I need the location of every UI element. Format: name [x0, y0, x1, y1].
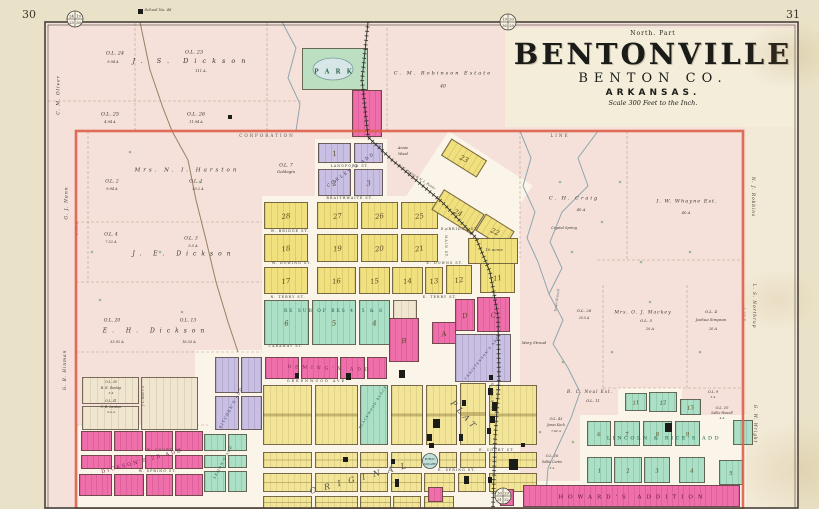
map-label: Joshua Simpson — [695, 317, 727, 322]
map-label: GREENWOOD AVE. — [287, 379, 349, 383]
map-label: O.L. 5 — [640, 318, 653, 323]
map-label: C — [490, 311, 497, 320]
map-label: 5 — [729, 471, 734, 477]
map-label: N. J. Robbins — [751, 176, 756, 217]
map-label: E. TERRY ST. — [423, 295, 458, 299]
map-label: 6 — [284, 319, 290, 328]
section-number: 19 — [76, 15, 81, 19]
map-label: E. H. Dickson — [102, 328, 210, 335]
map-label: LINCOLN & RICE'S ADD — [607, 436, 721, 442]
map-label: O.L. 4 — [705, 309, 718, 314]
map-label: G. W. Wright — [753, 405, 758, 444]
map-label: 7.52 A — [105, 240, 117, 244]
map-label: D — [461, 312, 469, 321]
map-label: Jonas Koch — [546, 423, 565, 427]
map-label: 18 — [281, 244, 291, 253]
map-label: O.L. 13 — [180, 318, 197, 324]
map-label: B — [400, 337, 407, 346]
map-label: N. TERRY ST. — [270, 295, 305, 299]
map-label: 16 — [332, 277, 342, 286]
map-label: Mary Stroud — [521, 340, 547, 345]
map-label: 13 — [687, 405, 695, 412]
map-label: O.L. 1 — [189, 179, 203, 185]
map-label: 5 — [331, 319, 337, 328]
map-label: 19 — [333, 244, 343, 253]
map-label: P A R K — [314, 69, 354, 76]
map-label: SQUARE — [424, 462, 436, 466]
map-label: E. SPRING ST. — [438, 468, 476, 472]
map-label: CHRISTENSON'S ADD — [464, 335, 501, 380]
map-label: KITCHEN'S ADD — [218, 386, 244, 429]
map-label: 12 — [454, 276, 464, 285]
map-label: 14 — [403, 277, 413, 286]
map-label: 17 — [281, 277, 291, 286]
map-label: J. E. Dickson — [130, 251, 235, 258]
map-label: C. H. Craig — [549, 196, 599, 202]
map-scale-note: Scale 300 Feet to the Inch. — [508, 99, 798, 107]
map-label: 22 — [488, 226, 501, 238]
map-label: 12 — [659, 400, 667, 407]
map-label: LEMON'S ADD — [213, 445, 234, 480]
map-label: Town Branch — [553, 288, 560, 312]
map-label: ORIGINAL — [309, 459, 415, 495]
map-label: 1 — [597, 468, 601, 474]
map-label: 111 A. — [195, 69, 206, 73]
map-label: RE SUB OF BKS 4, 5 & 6 — [284, 309, 384, 314]
map-label: O.L. 20 — [104, 318, 121, 324]
map-label: BRAITHWAITE ST. — [326, 196, 373, 200]
title-kicker: North. Part — [508, 30, 798, 37]
map-label: W. BRIDGE ST. — [271, 229, 310, 233]
map-label: 16.33 A — [182, 340, 196, 344]
map-label: O.L. 23 — [185, 50, 203, 56]
map-label: 1 — [332, 150, 338, 159]
map-label: 40 A — [576, 207, 586, 212]
map-label: Goldagin — [277, 169, 296, 174]
map-label: 20 A — [645, 327, 655, 331]
map-label: 11 — [632, 400, 640, 407]
map-label: School No. 46 — [145, 7, 173, 12]
map-label: O.L. 43 — [550, 417, 564, 421]
map-label: PLAT — [448, 398, 480, 433]
map-label: S. MAIN ST. — [490, 383, 494, 414]
map-label: E. COURT ST. — [479, 448, 515, 452]
map-label: 10 acres — [485, 247, 502, 252]
map-label: A — [440, 330, 447, 339]
map-label: 20 A — [708, 327, 718, 331]
map-label: 21 — [414, 244, 425, 253]
map-label: W. E. Patton & N. L. Banks — [398, 164, 437, 191]
map-label: N. MAIN ST. — [444, 227, 448, 258]
map-label: 4 A — [718, 416, 725, 420]
map-label: 3 — [366, 179, 372, 188]
map-label: 28 — [280, 212, 291, 221]
map-label: 25 — [414, 212, 425, 221]
map-label: HOWARD'S ADDITION — [558, 495, 707, 501]
map-label: 40 A — [681, 210, 691, 215]
map-label: 4 — [371, 319, 378, 328]
map-label: J. L. Bare 1 A — [141, 385, 145, 407]
section-number: 32 — [504, 498, 509, 502]
map-label: LINE — [742, 308, 747, 323]
map-label: 4.94 A — [103, 120, 116, 124]
map-subtitle-state: ARKANSAS. — [508, 88, 798, 98]
map-label: 33.92 A — [110, 340, 124, 344]
map-label: O.L. 26 — [187, 112, 206, 118]
map-label: 26 — [374, 212, 385, 221]
section-number: 24 — [69, 15, 74, 19]
map-label: O.L. 25 — [101, 112, 119, 118]
map-label: CARAWAY ST. — [268, 344, 303, 348]
map-label: Mrs. O. J. Mackey — [613, 310, 671, 316]
page-number-left: 30 — [22, 8, 36, 21]
map-label: Annie — [397, 146, 408, 150]
plat-map-page: 30 31 North. Part BENTONVILLE BENTON CO.… — [0, 0, 819, 509]
map-label: 40 — [439, 84, 446, 90]
map-label: 9.94 A — [107, 60, 119, 64]
section-number: 29 — [504, 492, 509, 496]
map-label: O.L. 30 — [105, 380, 117, 384]
map-label: 2 — [625, 468, 631, 475]
title-block: North. Part BENTONVILLE BENTON CO. ARKAN… — [508, 30, 798, 107]
map-label: O.L. 10 — [716, 406, 730, 410]
map-label: O.L. 11 — [586, 398, 600, 403]
map-label: O.L. 3 — [184, 236, 198, 242]
map-label: O.L. 7 — [279, 163, 293, 169]
map-label: 6 — [597, 432, 602, 438]
map-label: Crystal Spring — [551, 226, 578, 230]
map-label: O.L. 9 — [708, 390, 719, 394]
map-label: 20.5 A — [578, 316, 590, 320]
map-label: 3.4 A — [107, 410, 116, 414]
map-subtitle-county: BENTON CO. — [508, 71, 798, 86]
map-label: O.L. 16 — [546, 454, 560, 458]
map-label: J. S. Dickson — [131, 57, 252, 65]
map-label: 24 — [451, 207, 463, 218]
map-label: L. S. Northrup — [752, 283, 757, 329]
map-label: 5 A — [710, 395, 716, 399]
map-label: C. B. Lawton — [101, 405, 122, 409]
map-label: 11.94 A — [189, 120, 203, 124]
map-label: 9.94 A — [106, 187, 118, 191]
map-label: DEMING'S ADD — [287, 364, 372, 373]
map-label: 15 — [370, 277, 380, 286]
map-label: 4 — [689, 468, 695, 475]
section-number: 30 — [497, 492, 502, 496]
section-number: 30 — [502, 24, 507, 28]
map-label: E. DOWNS ST. — [426, 261, 463, 265]
section-number: 25 — [69, 21, 74, 25]
map-label: W. DOWING ST. — [272, 261, 312, 265]
map-label: PUBLIC — [425, 457, 436, 461]
section-number: 19 — [502, 18, 507, 22]
map-label: 27 — [332, 212, 343, 221]
map-label: 3 A — [108, 391, 114, 395]
map-label: LINE — [550, 133, 569, 138]
map-label: G. J. Nunn — [64, 186, 70, 219]
map-label: O.L. 4 — [104, 232, 118, 238]
map-label: BLACKWOOD BLOCK — [358, 385, 388, 430]
map-label: LINE — [74, 221, 79, 236]
map-label: Mrs. N. I. Harston — [134, 168, 240, 174]
section-number: 30 — [76, 21, 81, 25]
map-label: 20.2 A — [191, 187, 204, 191]
map-label: O.L. 24 — [106, 51, 124, 57]
map-label: B. C. Neal Est. — [566, 389, 613, 394]
map-label: 20 — [374, 244, 385, 253]
map-label: Sallie Curtis — [542, 460, 562, 464]
section-number: 20 — [509, 18, 514, 22]
map-label: Wood — [398, 152, 409, 156]
map-label: 13 — [429, 277, 439, 286]
map-label: W. SPRING ST. — [139, 469, 177, 473]
map-label: Sallie Howell — [711, 411, 732, 415]
map-label: 11 — [493, 274, 503, 283]
section-number: 29 — [509, 24, 514, 28]
page-number-right: 31 — [786, 8, 800, 21]
map-label: R. E. Dunlap — [100, 386, 121, 390]
map-label: 3 — [655, 468, 660, 474]
map-label: 23 — [457, 153, 470, 165]
map-label: C. M. Robinson Estate — [394, 71, 492, 77]
map-label: I. W. Whayne Est. — [655, 199, 717, 205]
map-label: 3 A — [549, 466, 555, 470]
map-label: O.L. 26 — [577, 308, 592, 313]
map-label: CORPORATION — [239, 133, 295, 138]
map-title: BENTONVILLE — [508, 39, 798, 69]
map-label: 5.5 A — [188, 244, 198, 248]
map-label: O.L. 41 — [105, 399, 117, 403]
map-label: G. B. Hinman — [62, 350, 67, 390]
map-label: C. M. Oliver — [56, 75, 62, 115]
section-number: 31 — [497, 498, 502, 502]
map-label: 7.92 A — [551, 429, 562, 433]
map-label: O.L. 2 — [105, 179, 119, 185]
